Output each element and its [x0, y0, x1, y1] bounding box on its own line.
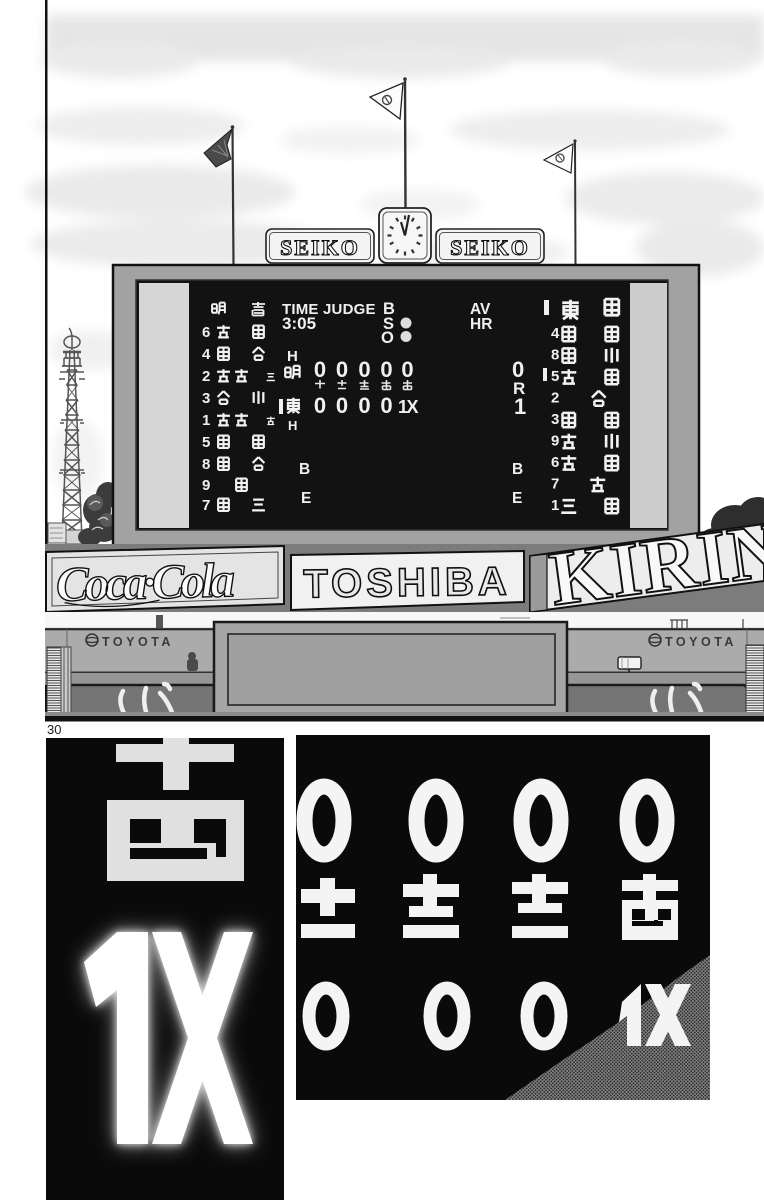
- svg-text:0: 0: [358, 357, 370, 382]
- svg-text:H: H: [288, 418, 297, 433]
- svg-text:O: O: [381, 329, 394, 347]
- svg-text:1X: 1X: [398, 397, 419, 417]
- svg-text:8: 8: [551, 347, 559, 364]
- svg-text:TOSHIBA: TOSHIBA: [303, 560, 511, 607]
- svg-text:E: E: [512, 490, 522, 507]
- svg-text:4: 4: [202, 346, 211, 363]
- svg-text:2: 2: [551, 390, 559, 407]
- svg-text:B: B: [512, 461, 523, 478]
- svg-text:B: B: [299, 461, 310, 478]
- svg-text:0: 0: [314, 357, 326, 382]
- svg-text:SEIKO: SEIKO: [450, 235, 530, 260]
- svg-text:SEIKO: SEIKO: [280, 235, 360, 260]
- svg-text:3:05: 3:05: [282, 314, 316, 333]
- svg-text:3: 3: [202, 390, 210, 407]
- svg-text:4: 4: [551, 325, 560, 342]
- svg-text:6: 6: [202, 324, 210, 341]
- svg-text:8: 8: [202, 456, 210, 473]
- svg-text:3: 3: [551, 411, 559, 428]
- svg-text:1: 1: [551, 497, 559, 514]
- svg-text:0: 0: [314, 393, 326, 418]
- svg-text:H: H: [287, 348, 298, 365]
- svg-text:0: 0: [401, 357, 413, 382]
- svg-text:0: 0: [358, 393, 370, 418]
- svg-text:5: 5: [551, 368, 559, 385]
- svg-text:0: 0: [336, 393, 348, 418]
- svg-text:TOYOTA: TOYOTA: [102, 635, 174, 649]
- svg-text:7: 7: [202, 497, 210, 514]
- svg-text:9: 9: [551, 433, 559, 450]
- svg-text:0: 0: [336, 357, 348, 382]
- svg-text:E: E: [301, 490, 311, 507]
- svg-text:7: 7: [551, 476, 559, 493]
- svg-text:0: 0: [380, 357, 392, 382]
- svg-text:0: 0: [380, 393, 392, 418]
- svg-text:6: 6: [551, 454, 559, 471]
- svg-text:5: 5: [202, 434, 210, 451]
- svg-text:2: 2: [202, 368, 210, 385]
- svg-text:9: 9: [202, 477, 210, 494]
- svg-text:1: 1: [514, 394, 526, 419]
- svg-text:1: 1: [202, 412, 210, 429]
- svg-text:HR: HR: [470, 316, 492, 333]
- svg-text:TOYOTA: TOYOTA: [665, 635, 737, 649]
- svg-text:30: 30: [47, 722, 61, 737]
